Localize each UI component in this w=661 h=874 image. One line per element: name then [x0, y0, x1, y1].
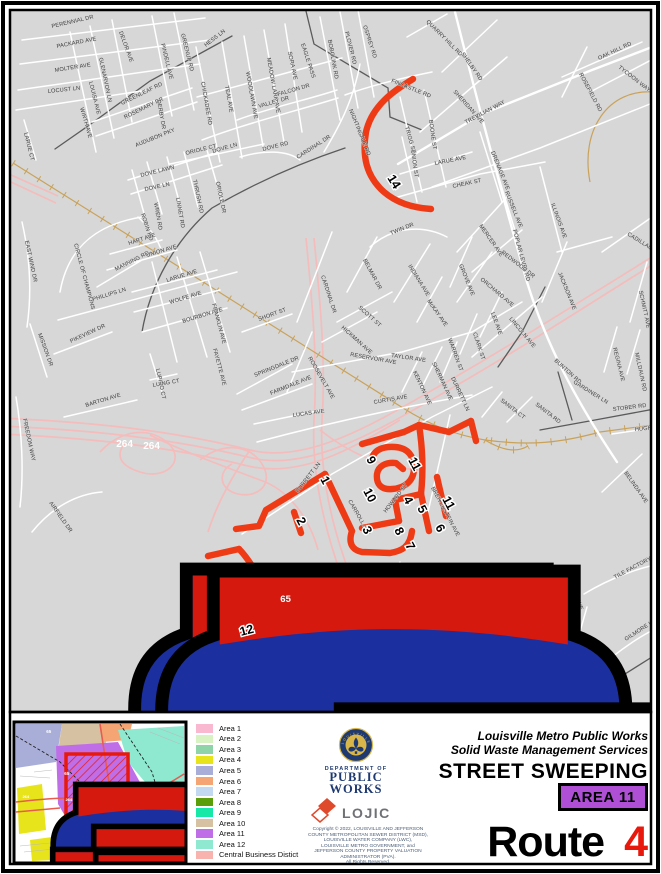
legend-item: Area 12	[196, 839, 298, 850]
legend-label: Area 3	[219, 745, 241, 754]
legend-label: Area 6	[219, 777, 241, 786]
legend-swatch	[196, 724, 213, 733]
legend-item: Area 9	[196, 807, 298, 818]
legend-item: Area 11	[196, 828, 298, 839]
legend-label: Area 5	[219, 766, 241, 775]
legend-label: Area 11	[219, 829, 245, 838]
legend-label: Area 1	[219, 724, 241, 733]
legend-swatch	[196, 735, 213, 744]
legend-item: Area 10	[196, 818, 298, 829]
legend-item: Area 6	[196, 776, 298, 787]
copyright-line: All Rights Reserved.	[288, 860, 448, 866]
shield-number: 264	[22, 794, 29, 799]
legend-swatch	[196, 756, 213, 765]
legend-item: Area 2	[196, 734, 298, 745]
route-word: Route	[487, 818, 604, 866]
department-block: DEPARTMENT OF PUBLIC WORKS	[300, 766, 412, 795]
legend: Area 1Area 2Area 3Area 4Area 5Area 6Area…	[196, 723, 298, 860]
title-block: Louisville Metro Public Works Solid Wast…	[439, 729, 648, 784]
legend-item: Area 5	[196, 765, 298, 776]
legend-swatch	[196, 777, 213, 786]
map-title: STREET SWEEPING	[439, 760, 648, 784]
legend-label: Central Business Distict	[219, 850, 298, 859]
legend-label: Area 9	[219, 808, 241, 817]
shield-number: 264	[143, 441, 160, 452]
shield-number: 264	[65, 797, 72, 802]
lojic-wordmark: LOJIC	[342, 805, 391, 821]
legend-swatch	[196, 787, 213, 796]
legend-swatch	[196, 819, 213, 828]
legend-item: Area 7	[196, 786, 298, 797]
legend-item: Area 3	[196, 744, 298, 755]
shield-number: 65	[64, 771, 70, 776]
legend-swatch	[196, 798, 213, 807]
street-sweeping-map-page: PERENNIAL DRPACKARD AVEMOLTER AVELOCUST …	[0, 0, 661, 874]
area-badge: AREA 11	[558, 783, 648, 811]
legend-label: Area 7	[219, 787, 241, 796]
legend-swatch	[196, 851, 213, 860]
lojic-logo: LOJIC	[312, 798, 391, 822]
shield-number: 65	[46, 729, 52, 734]
legend-swatch	[196, 766, 213, 775]
legend-swatch	[196, 840, 213, 849]
agency-title: Louisville Metro Public Works	[439, 729, 648, 743]
legend-item: Area 4	[196, 755, 298, 766]
legend-item: Area 1	[196, 723, 298, 734]
legend-label: Area 12	[219, 840, 245, 849]
legend-swatch	[196, 808, 213, 817]
legend-label: Area 4	[219, 755, 241, 764]
copyright-block: Copyright © 2022, LOUISVILLE AND JEFFERS…	[288, 827, 448, 866]
shield-number: 65	[280, 594, 291, 605]
legend-label: Area 10	[219, 819, 245, 828]
legend-label: Area 8	[219, 798, 241, 807]
shield-number: 264	[116, 439, 133, 450]
legend-item: Central Business Distict	[196, 850, 298, 861]
route-title: Route4	[487, 818, 647, 867]
legend-label: Area 2	[219, 734, 241, 743]
agency-subtitle: Solid Waste Management Services	[439, 743, 648, 757]
legend-item: Area 8	[196, 797, 298, 808]
public-works-seal: LOUISVILLE	[340, 729, 373, 762]
legend-swatch	[196, 829, 213, 838]
works-label: WORKS	[300, 784, 412, 796]
legend-swatch	[196, 745, 213, 754]
route-number-big: 4	[624, 818, 647, 866]
